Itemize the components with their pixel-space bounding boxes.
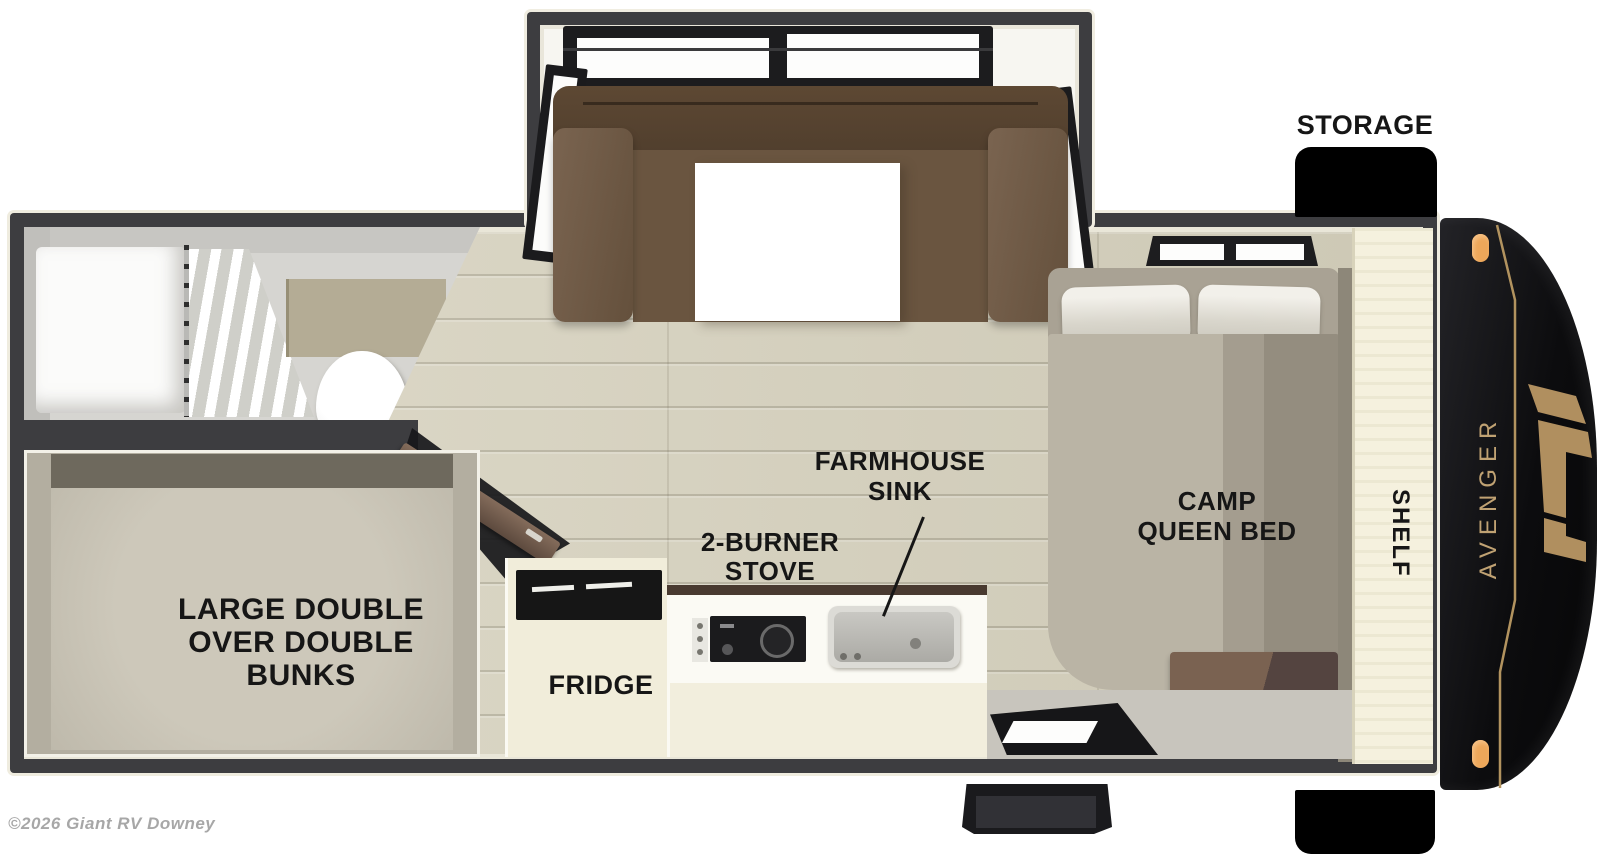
dinette-sofa-left-arm <box>553 128 633 322</box>
window-pane <box>1236 244 1304 260</box>
burner-icon <box>760 624 794 658</box>
interior-wall <box>10 420 418 450</box>
faucet-icon <box>840 653 847 660</box>
bunks-label: LARGE DOUBLE OVER DOUBLE BUNKS <box>101 593 501 692</box>
avenger-decal: AVENGER <box>1475 337 1505 657</box>
fridge-top <box>516 570 662 620</box>
marker-light-icon <box>1472 740 1489 768</box>
stove-label: 2-BURNER STOVE <box>650 528 890 586</box>
bedroom-window <box>1146 236 1318 266</box>
window-mullion <box>563 48 993 51</box>
brand-logo-icon <box>1528 384 1592 562</box>
farmhouse-sink <box>828 606 960 668</box>
window-pane <box>1160 244 1224 260</box>
exterior-rear-box <box>1295 790 1435 854</box>
floorplan-canvas: LARGE DOUBLE OVER DOUBLE BUNKS FARMHOUSE… <box>0 0 1600 859</box>
burner-icon <box>722 644 733 655</box>
bunk-back-wall <box>51 454 453 488</box>
door-handle <box>525 528 543 543</box>
two-burner-stove <box>710 616 806 662</box>
entry-door-glass <box>1002 721 1098 743</box>
faucet-icon <box>854 653 861 660</box>
front-cap: AVENGER <box>1440 218 1597 790</box>
slide-out-rear-window <box>563 26 993 90</box>
entry-step-tread <box>976 796 1096 828</box>
sink-drain-icon <box>910 638 921 649</box>
storage-label: STORAGE <box>1245 110 1485 140</box>
fridge-handle <box>586 582 632 589</box>
fridge-handle <box>532 585 574 592</box>
watermark: ©2026 Giant RV Downey <box>8 814 215 834</box>
entry-step <box>962 784 1112 834</box>
stove-controls <box>692 618 708 662</box>
shower <box>36 247 186 413</box>
window-pane <box>787 34 979 78</box>
exterior-storage-box <box>1295 147 1437 217</box>
cap-trim-graphics <box>1440 218 1597 790</box>
shower-curtain-rod <box>184 245 189 417</box>
stove-mark <box>720 624 734 628</box>
window-pane <box>577 38 769 78</box>
dinette-table <box>695 163 900 321</box>
sink-basin <box>834 612 954 662</box>
marker-light-icon <box>1472 234 1489 262</box>
shelf-label: SHELF <box>1380 468 1414 598</box>
fridge-label: FRIDGE <box>501 670 701 700</box>
bed-label: CAMP QUEEN BED <box>1097 486 1337 546</box>
sink-label: FARMHOUSE SINK <box>780 446 1020 506</box>
bathroom-counter <box>286 279 446 357</box>
